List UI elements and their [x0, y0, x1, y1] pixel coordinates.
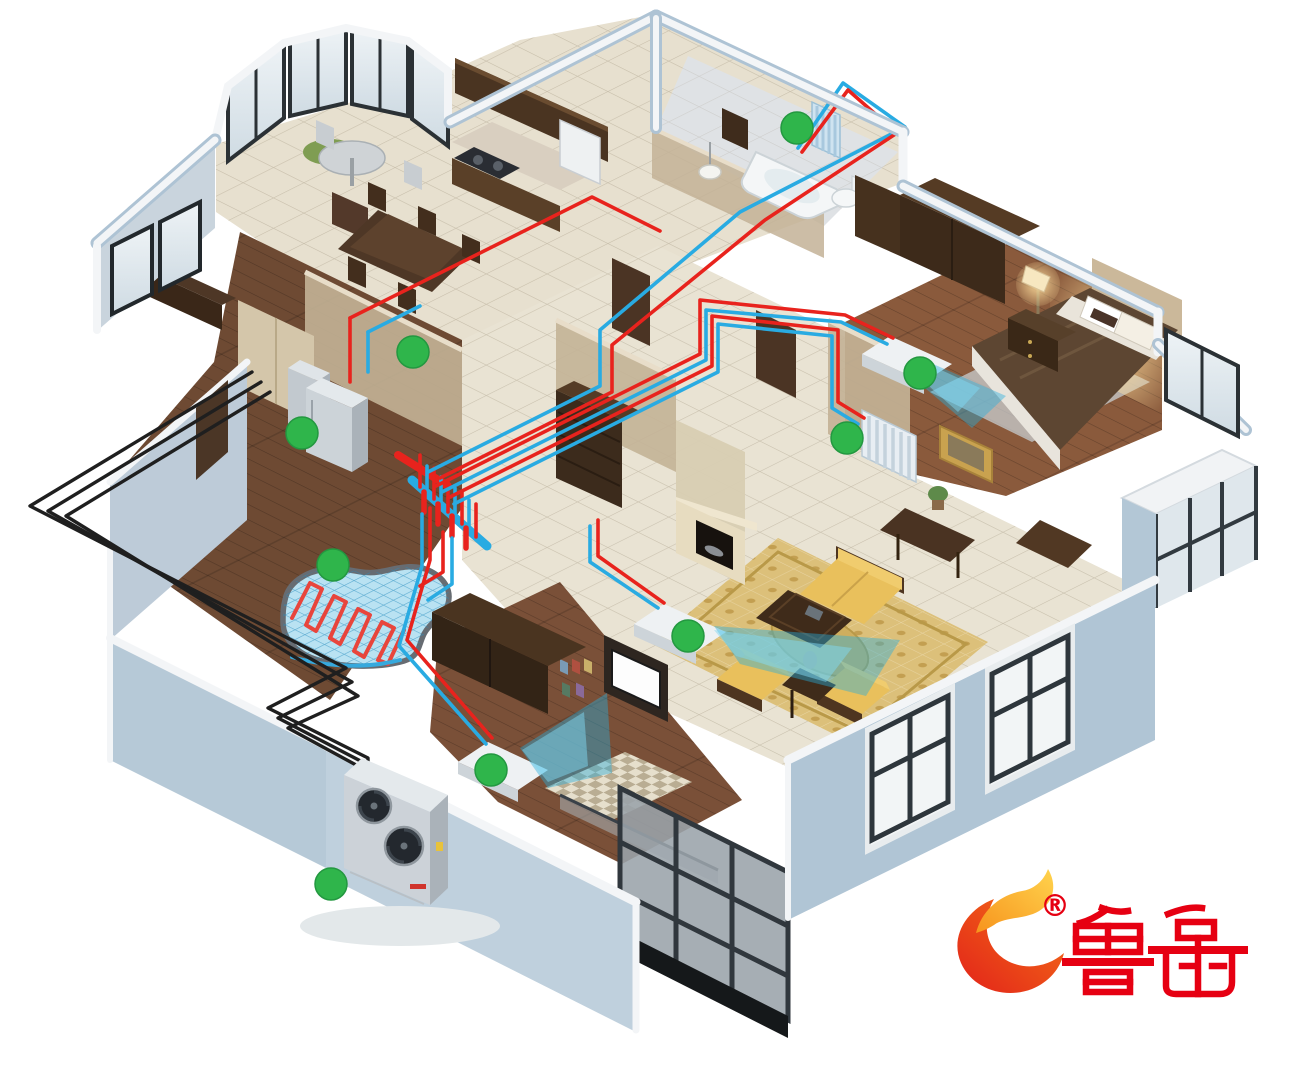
marker-utility-indoor-unit	[286, 417, 318, 449]
unit-shadow	[300, 906, 500, 946]
char-yu	[1152, 908, 1244, 994]
flame-icon	[957, 869, 1064, 993]
registered-mark: ®	[1040, 889, 1070, 924]
brand-characters	[1066, 908, 1244, 994]
plant	[928, 486, 948, 502]
wardrobe	[855, 175, 900, 256]
heating-system-illustration: 鲁禹	[0, 0, 1314, 1065]
brand-sticker	[410, 884, 426, 889]
entry-glass-door	[618, 788, 788, 1038]
house-cutaway-scene: ®	[0, 0, 1314, 1065]
marker-entry-hallway	[397, 336, 429, 368]
fan	[357, 789, 391, 823]
marker-bedroom-fan-coil	[904, 357, 936, 389]
marker-hallway-bedroom-radiator	[831, 422, 863, 454]
brand-logo: ®	[957, 869, 1244, 994]
fan	[385, 827, 423, 865]
warning-sticker	[436, 842, 443, 851]
marker-living-room-fan-coil	[672, 620, 704, 652]
char-lu	[1066, 908, 1150, 992]
marker-bathroom-radiator	[781, 112, 813, 144]
marker-floor-heating-room	[317, 549, 349, 581]
marker-south-bedroom-fan-coil	[475, 754, 507, 786]
pendant-lamp	[699, 165, 721, 179]
marker-outdoor-unit	[315, 868, 347, 900]
